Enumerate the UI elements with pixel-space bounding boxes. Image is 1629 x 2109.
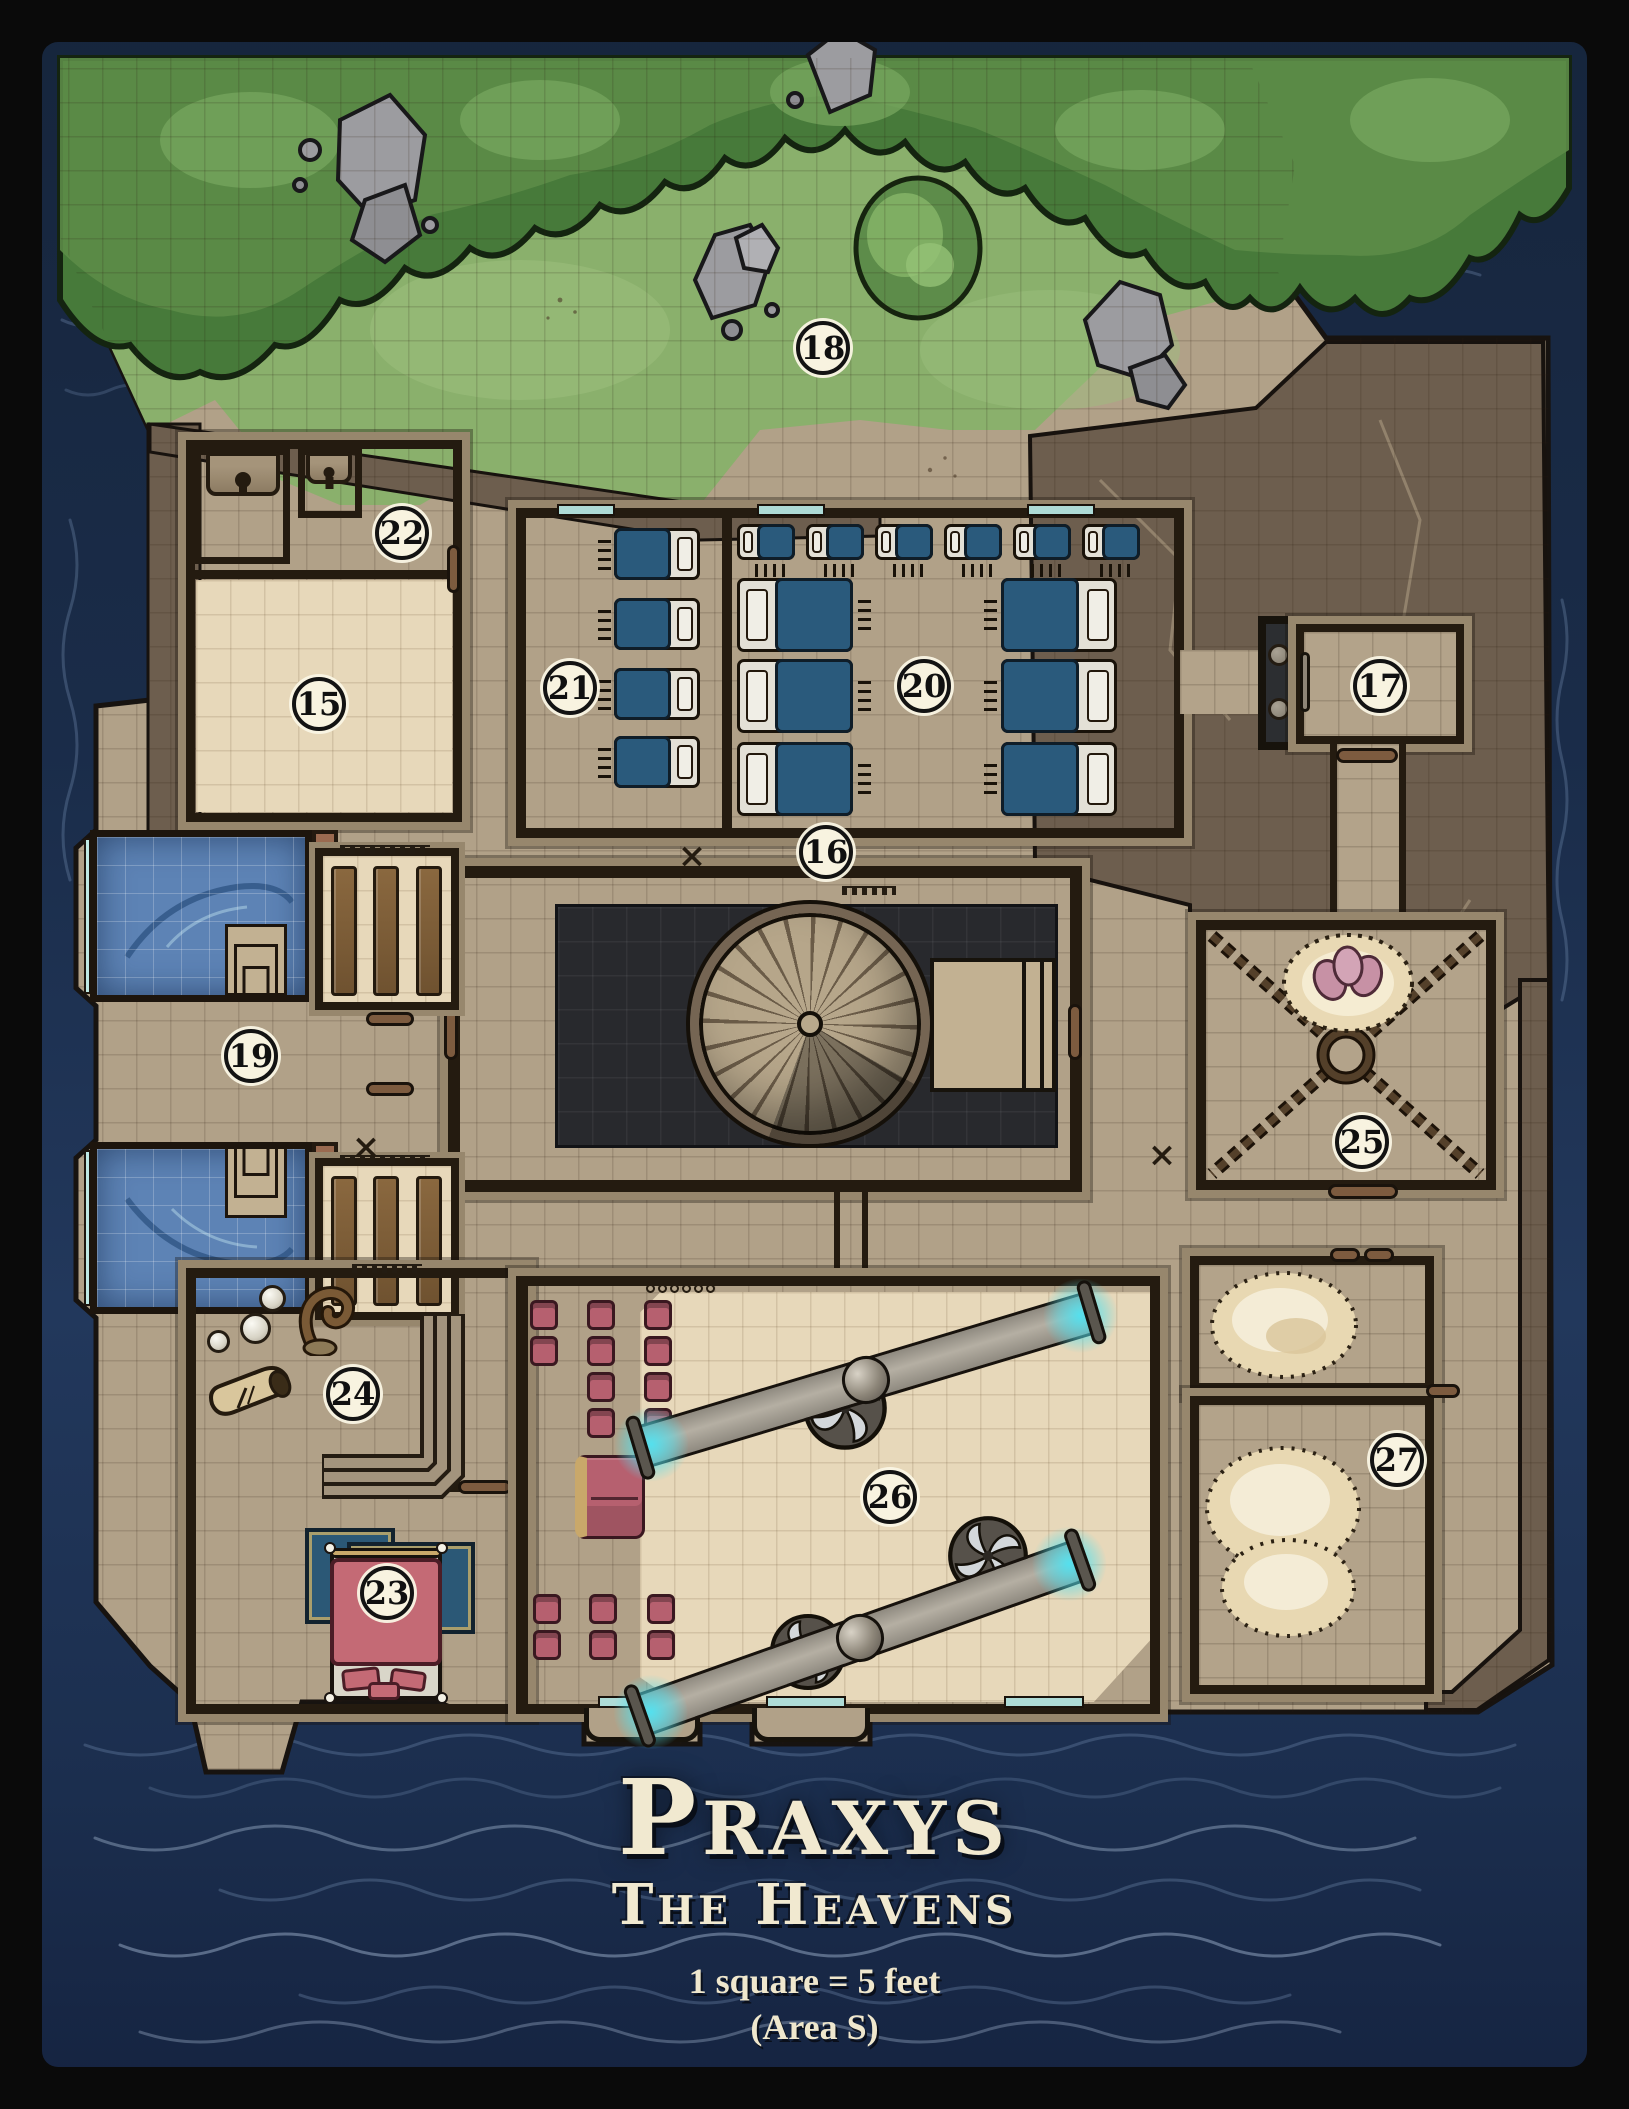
ladder-icon xyxy=(984,764,997,794)
door xyxy=(1328,1184,1398,1199)
bed xyxy=(737,742,853,816)
chair xyxy=(587,1336,615,1366)
bed-blanket xyxy=(775,659,853,733)
bed-blanket xyxy=(614,528,671,580)
bed-pillow xyxy=(1019,531,1029,554)
chair xyxy=(587,1408,615,1438)
ladder-icon xyxy=(858,681,871,711)
bed-blanket xyxy=(1102,524,1140,560)
bed-pillow xyxy=(746,670,768,722)
chair xyxy=(587,1300,615,1330)
entry-step xyxy=(752,1708,870,1742)
bed-blanket xyxy=(614,736,671,788)
chair xyxy=(530,1300,558,1330)
door xyxy=(447,545,460,593)
bed-blanket xyxy=(775,578,853,652)
area-badge-17: 17 xyxy=(1353,659,1407,713)
chair xyxy=(530,1336,558,1366)
bed-pillow xyxy=(746,589,768,641)
chair xyxy=(644,1336,672,1366)
keyhole-icon xyxy=(235,472,251,488)
bed-pillow xyxy=(677,607,693,642)
window xyxy=(557,504,615,516)
bed-post xyxy=(436,1542,448,1554)
ladder-icon xyxy=(598,610,611,640)
area-badge-23: 23 xyxy=(360,1566,414,1620)
bed-pillow xyxy=(677,745,693,780)
area-badge-22: 22 xyxy=(375,506,429,560)
ladder-icon xyxy=(858,600,871,630)
area-badge-26: 26 xyxy=(863,1470,917,1524)
bed-blanket xyxy=(1001,659,1079,733)
ladder-icon xyxy=(984,681,997,711)
white-orb xyxy=(207,1330,230,1353)
window xyxy=(766,1696,846,1708)
lock-chest-icon xyxy=(206,452,280,496)
ladder-icon xyxy=(598,540,611,570)
ladder-icon xyxy=(984,600,997,630)
nest-with-eggs xyxy=(1278,928,1418,1038)
wall-rivets xyxy=(646,1284,715,1293)
area-badge-16: 16 xyxy=(799,825,853,879)
bed-blanket xyxy=(614,598,671,650)
window xyxy=(84,838,91,994)
bed xyxy=(614,598,700,650)
area-badge-15: 15 xyxy=(292,677,346,731)
stair-landing xyxy=(930,958,1056,1092)
ladder-icon xyxy=(1100,564,1130,577)
door xyxy=(1426,1384,1460,1398)
x-marker: × xyxy=(1148,1135,1177,1175)
door-slab xyxy=(1300,652,1310,712)
coiled-horn xyxy=(298,1286,358,1356)
bed-pillow xyxy=(746,753,768,805)
area-badge-25: 25 xyxy=(1335,1115,1389,1169)
chair xyxy=(587,1372,615,1402)
grass-highlight xyxy=(370,260,670,400)
bed-pillow xyxy=(1087,589,1109,641)
pool-step xyxy=(243,966,270,996)
chair xyxy=(589,1630,617,1660)
door xyxy=(366,1012,414,1026)
bed-blanket xyxy=(1001,578,1079,652)
ladder-icon xyxy=(893,564,923,577)
map-subtitle: The Heavens xyxy=(0,1872,1629,1938)
pool-step xyxy=(243,1146,270,1176)
bed-pillow xyxy=(1088,531,1098,554)
bed xyxy=(1013,524,1071,560)
window xyxy=(84,1150,91,1306)
bed-pillow xyxy=(677,677,693,712)
bed-blanket xyxy=(895,524,933,560)
bench-plank xyxy=(331,866,357,996)
bed xyxy=(1001,578,1117,652)
bed xyxy=(1001,742,1117,816)
window xyxy=(1004,1696,1084,1708)
chair xyxy=(589,1594,617,1624)
bed xyxy=(737,659,853,733)
door xyxy=(444,1004,458,1060)
bed-pillow xyxy=(1087,670,1109,722)
white-orb xyxy=(240,1313,271,1344)
wall xyxy=(722,512,732,834)
ladder-icon xyxy=(858,764,871,794)
door xyxy=(1364,1248,1394,1262)
wall xyxy=(190,570,458,579)
bed-pillow xyxy=(677,537,693,572)
bed-pillow xyxy=(1087,753,1109,805)
chair xyxy=(647,1630,675,1660)
bed xyxy=(944,524,1002,560)
chair xyxy=(533,1594,561,1624)
corridor xyxy=(1330,744,1406,930)
bed-post xyxy=(324,1542,336,1554)
door xyxy=(1068,1004,1082,1060)
spiral-hub xyxy=(797,1011,823,1037)
lock-chest-icon xyxy=(306,452,352,484)
bed xyxy=(737,578,853,652)
ladder-icon xyxy=(1031,564,1061,577)
bush xyxy=(856,178,980,318)
white-orb xyxy=(259,1285,286,1312)
bench-plank xyxy=(373,866,399,996)
vestibule-orb xyxy=(1268,644,1290,666)
x-marker: × xyxy=(352,1127,381,1167)
window xyxy=(1027,504,1095,516)
nest xyxy=(1198,1428,1368,1658)
chair xyxy=(644,1300,672,1330)
area-badge-19: 19 xyxy=(224,1029,278,1083)
bed xyxy=(614,668,700,720)
door xyxy=(1330,1248,1360,1262)
bed-pillow xyxy=(368,1682,400,1700)
bed-headboard xyxy=(330,1548,442,1558)
area-badge-20: 20 xyxy=(897,659,951,713)
bed xyxy=(875,524,933,560)
map-scale-note: 1 square = 5 feet xyxy=(0,1960,1629,2002)
wall xyxy=(834,1192,840,1282)
bed-blanket xyxy=(964,524,1002,560)
corridor xyxy=(1180,650,1266,714)
bed-pillow xyxy=(743,531,753,554)
door xyxy=(366,1082,414,1096)
bed xyxy=(1082,524,1140,560)
bed xyxy=(614,736,700,788)
ladder-icon xyxy=(755,564,785,577)
bed-blanket xyxy=(1033,524,1071,560)
grate xyxy=(842,886,896,895)
x-marker: × xyxy=(678,836,707,876)
area-badge-27: 27 xyxy=(1370,1433,1424,1487)
bed-blanket xyxy=(757,524,795,560)
chair xyxy=(644,1372,672,1402)
map-title: Praxys xyxy=(0,1766,1629,1870)
bed-post xyxy=(324,1692,336,1704)
map-area-note: (Area S) xyxy=(0,2006,1629,2048)
battle-map: × × × 15 16 17 18 19 20 21 22 23 24 25 2… xyxy=(0,0,1629,2109)
bed-blanket xyxy=(1001,742,1079,816)
bed-blanket xyxy=(614,668,671,720)
chair xyxy=(647,1594,675,1624)
bed-pillow xyxy=(881,531,891,554)
chair xyxy=(533,1630,561,1660)
bed-blanket xyxy=(775,742,853,816)
nest xyxy=(1204,1266,1364,1384)
bed-pillow xyxy=(950,531,960,554)
bed-blanket xyxy=(826,524,864,560)
area-badge-18: 18 xyxy=(796,321,850,375)
vestibule-orb xyxy=(1268,698,1290,720)
bench-plank xyxy=(416,866,442,996)
area-badge-21: 21 xyxy=(543,661,597,715)
bed xyxy=(806,524,864,560)
ladder-icon xyxy=(598,748,611,778)
bed xyxy=(1001,659,1117,733)
grate xyxy=(340,845,430,854)
area-badge-24: 24 xyxy=(326,1367,380,1421)
bed xyxy=(614,528,700,580)
bed xyxy=(737,524,795,560)
ladder-icon xyxy=(962,564,992,577)
wall xyxy=(862,1192,868,1282)
grate xyxy=(352,1264,422,1273)
fallen-horn xyxy=(204,1360,296,1422)
door xyxy=(1336,748,1398,763)
window xyxy=(757,504,825,516)
bed-pillow xyxy=(812,531,822,554)
ladder-icon xyxy=(598,680,611,710)
title-block: Praxys The Heavens 1 square = 5 feet (Ar… xyxy=(0,1766,1629,2048)
bed-post xyxy=(436,1692,448,1704)
keyhole-icon xyxy=(324,467,335,478)
ladder-icon xyxy=(824,564,854,577)
